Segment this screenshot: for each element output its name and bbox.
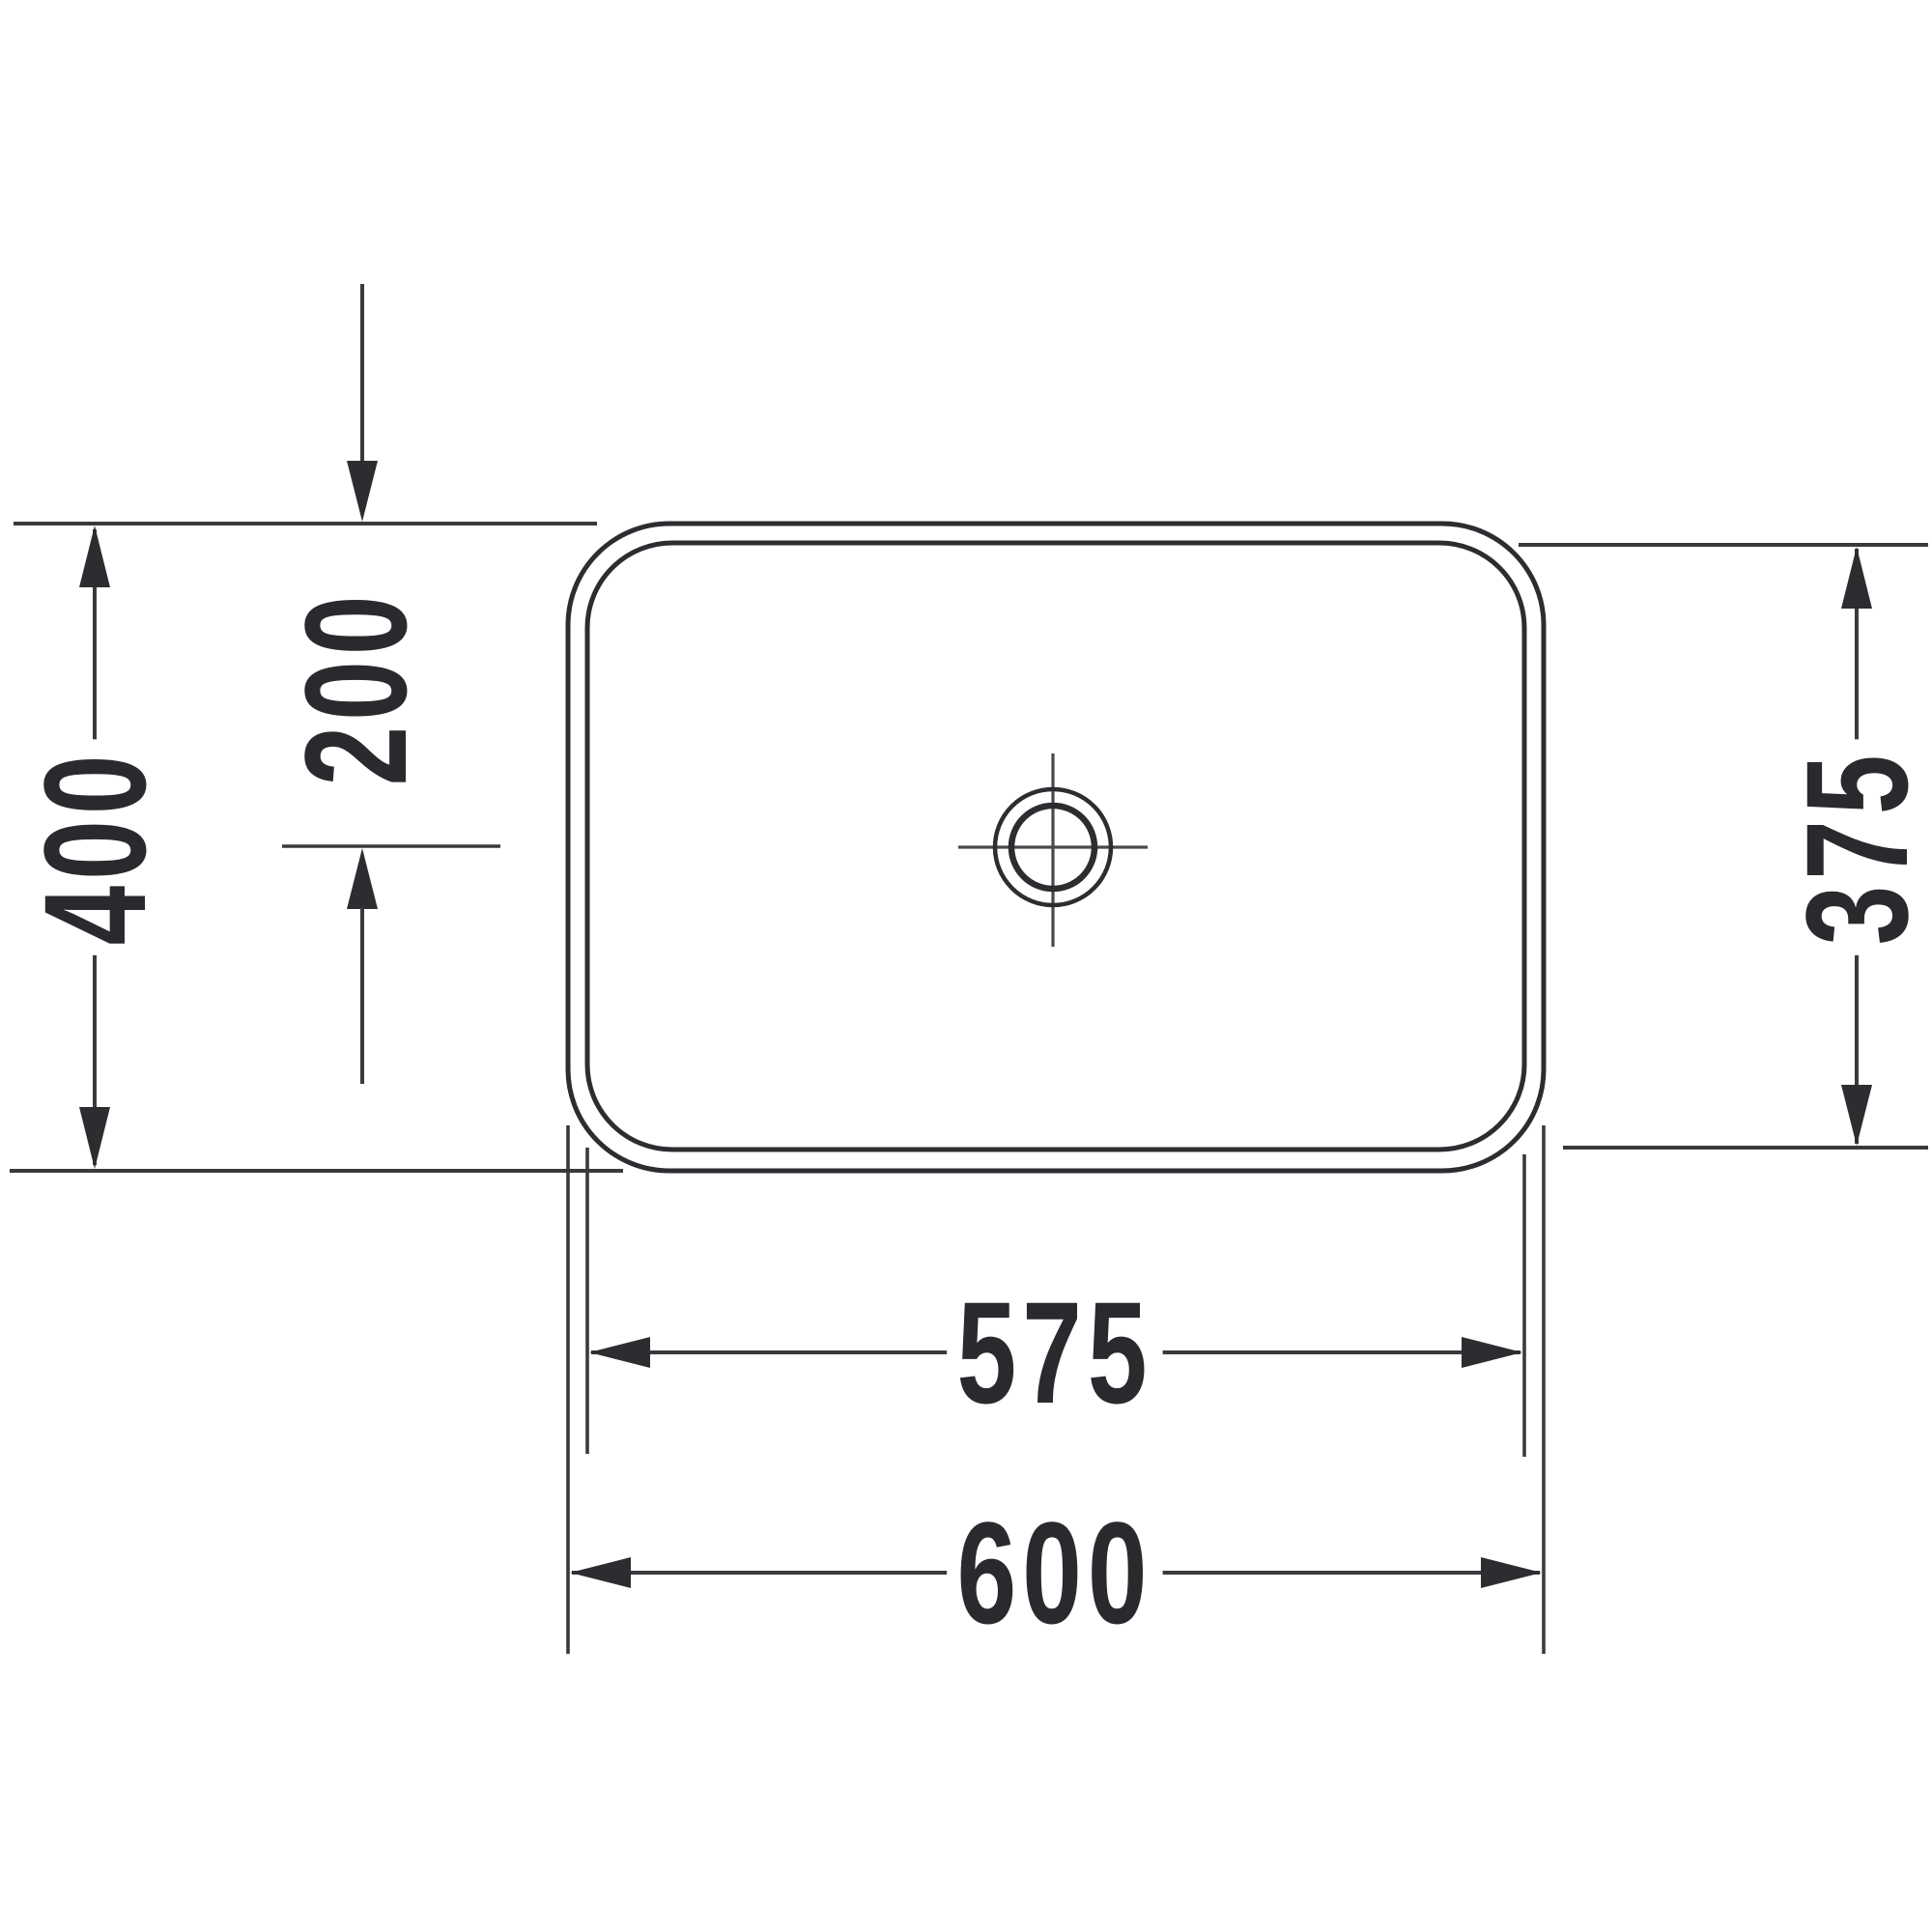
arrowhead-up-375 bbox=[1841, 547, 1872, 609]
arrowhead-down-375 bbox=[1841, 1085, 1872, 1146]
arrowhead-right-600 bbox=[1481, 1557, 1542, 1588]
dim-label-drain-offset: 200 bbox=[283, 580, 428, 796]
arrowhead-left-575 bbox=[589, 1337, 650, 1368]
technical-drawing: 400 200 375 575 600 bbox=[0, 0, 1932, 1932]
arrowhead-down-200 bbox=[347, 461, 378, 522]
drain bbox=[958, 753, 1148, 947]
dim-label-inner-width: 575 bbox=[947, 1280, 1163, 1425]
dim-label-outer-width: 600 bbox=[947, 1500, 1163, 1645]
dim-label-inner-depth: 375 bbox=[1784, 739, 1929, 955]
arrowhead-down-400 bbox=[79, 1107, 110, 1169]
arrowhead-left-600 bbox=[570, 1557, 631, 1588]
arrowhead-up-400 bbox=[79, 526, 110, 587]
arrowhead-up-200 bbox=[347, 848, 378, 909]
dim-label-outer-depth: 400 bbox=[22, 739, 167, 955]
arrowhead-right-575 bbox=[1462, 1337, 1522, 1368]
